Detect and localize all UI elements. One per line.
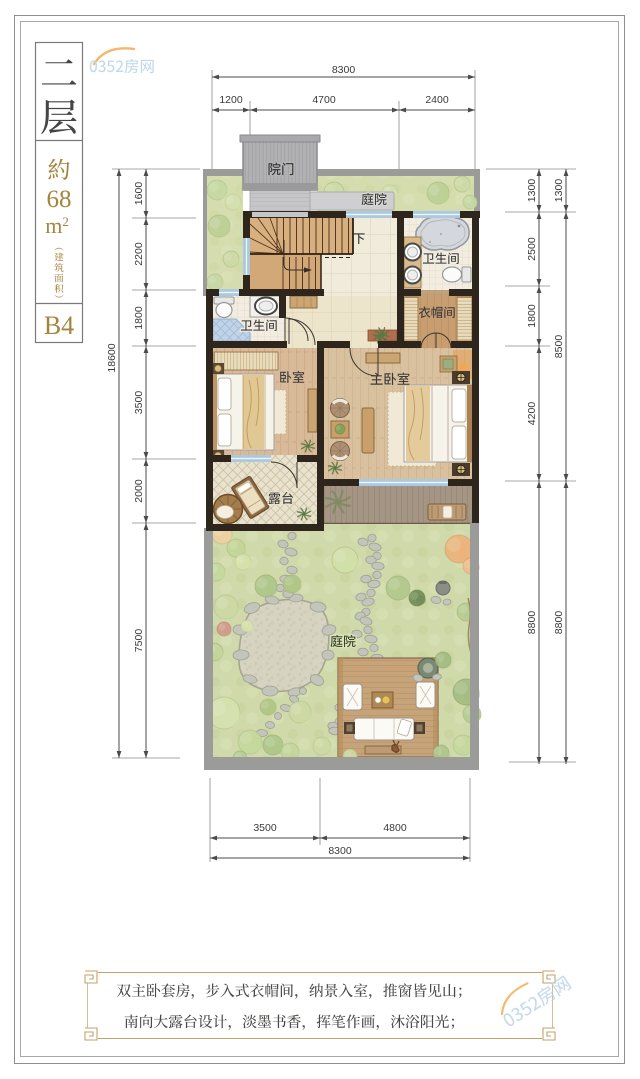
svg-text:8300: 8300 <box>328 845 352 857</box>
svg-text:4700: 4700 <box>312 94 336 106</box>
svg-text:1800: 1800 <box>526 304 538 328</box>
svg-text:1800: 1800 <box>133 306 145 330</box>
svg-text:4200: 4200 <box>526 402 538 426</box>
svg-text:18600: 18600 <box>106 343 118 372</box>
svg-text:8500: 8500 <box>553 335 565 359</box>
svg-text:4800: 4800 <box>383 822 407 834</box>
svg-text:8800: 8800 <box>526 611 538 635</box>
svg-text:2000: 2000 <box>133 479 145 503</box>
svg-text:1300: 1300 <box>553 179 565 203</box>
svg-text:3500: 3500 <box>253 822 277 834</box>
svg-text:2200: 2200 <box>133 242 145 266</box>
svg-text:68: 68 <box>47 186 72 213</box>
svg-text:2400: 2400 <box>425 94 449 106</box>
svg-text:3500: 3500 <box>133 391 145 415</box>
svg-text:7500: 7500 <box>133 629 145 653</box>
svg-text:1600: 1600 <box>133 182 145 206</box>
svg-text:1300: 1300 <box>526 179 538 203</box>
svg-text:1200: 1200 <box>219 94 243 106</box>
svg-text:8300: 8300 <box>332 64 356 76</box>
svg-text:8800: 8800 <box>553 611 565 635</box>
svg-text:2500: 2500 <box>526 237 538 261</box>
svg-text:B4: B4 <box>44 311 74 340</box>
